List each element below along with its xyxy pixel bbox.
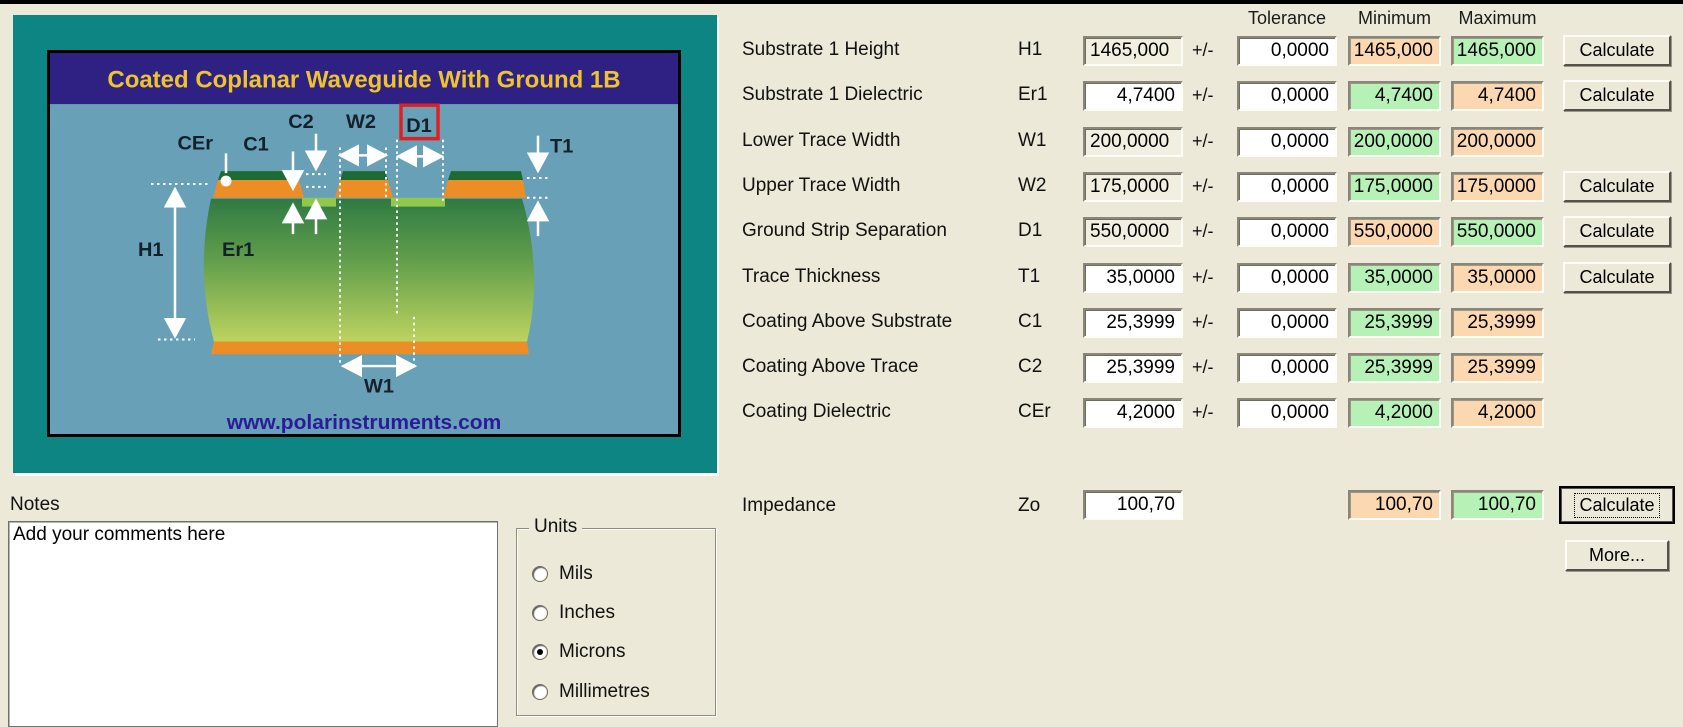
units-legend: Units: [529, 516, 582, 538]
calculate-button-T1[interactable]: Calculate: [1563, 262, 1671, 293]
param-value-input-CEr[interactable]: [1083, 398, 1183, 428]
param-label-C1: Coating Above Substrate: [742, 311, 952, 333]
units-radio-microns[interactable]: Microns: [532, 641, 626, 663]
units-radio-inches[interactable]: Inches: [532, 602, 615, 624]
structure-diagram-panel: Coated Coplanar Waveguide With Ground 1B: [47, 50, 681, 437]
param-minimum-Er1: 4,7400: [1348, 81, 1441, 111]
right-ground-copper: [443, 180, 526, 198]
param-minimum-CEr: 4,2000: [1348, 398, 1441, 428]
param-symbol-W2: W2: [1018, 175, 1047, 197]
center-trace-copper: [335, 180, 393, 198]
param-value-input-W1[interactable]: [1083, 127, 1183, 157]
param-tolerance-input-H1[interactable]: [1237, 36, 1337, 66]
plus-minus-C2: +/-: [1192, 357, 1214, 378]
param-symbol-W1: W1: [1018, 130, 1047, 152]
plus-minus-CEr: +/-: [1192, 402, 1214, 423]
units-radio-millimetres[interactable]: Millimetres: [532, 681, 650, 703]
param-label-D1: Ground Strip Separation: [742, 220, 947, 242]
bottom-copper-layer: [211, 341, 529, 354]
param-value-input-T1[interactable]: [1083, 263, 1183, 293]
diagram-label-er1: Er1: [222, 239, 254, 261]
impedance-value-input[interactable]: [1083, 490, 1183, 520]
radio-circle-microns[interactable]: [532, 644, 548, 660]
column-header-maximum: Maximum: [1451, 8, 1544, 29]
units-radio-mils[interactable]: Mils: [532, 563, 593, 585]
impedance-minimum-value: 100,70: [1348, 490, 1441, 520]
center-trace-coating: [340, 171, 388, 180]
diagram-label-h1: H1: [138, 239, 164, 261]
impedance-calculate-button-label: Calculate: [1574, 493, 1659, 518]
diagram-title: Coated Coplanar Waveguide With Ground 1B: [107, 67, 620, 94]
param-maximum-W1: 200,0000: [1451, 127, 1544, 157]
radio-label-mils: Mils: [559, 563, 593, 585]
impedance-maximum-value: 100,70: [1451, 490, 1544, 520]
param-symbol-CEr: CEr: [1018, 401, 1051, 423]
param-value-input-C1[interactable]: [1083, 308, 1183, 338]
param-label-Er1: Substrate 1 Dielectric: [742, 84, 923, 106]
param-tolerance-input-W1[interactable]: [1237, 127, 1337, 157]
param-minimum-D1: 550,0000: [1348, 217, 1441, 247]
param-minimum-T1: 35,0000: [1348, 263, 1441, 293]
valley-coating-left: [302, 198, 336, 207]
param-symbol-C2: C2: [1018, 356, 1042, 378]
plus-minus-D1: +/-: [1192, 221, 1214, 242]
param-minimum-H1: 1465,000: [1348, 36, 1441, 66]
column-header-tolerance: Tolerance: [1237, 8, 1337, 29]
param-symbol-D1: D1: [1018, 220, 1042, 242]
more-button[interactable]: More...: [1565, 540, 1669, 571]
param-value-input-Er1[interactable]: [1083, 81, 1183, 111]
plus-minus-W2: +/-: [1192, 176, 1214, 197]
diagram-label-cer: CEr: [177, 133, 213, 155]
plus-minus-W1: +/-: [1192, 131, 1214, 152]
param-maximum-CEr: 4,2000: [1451, 398, 1544, 428]
calculate-button-D1[interactable]: Calculate: [1563, 216, 1671, 247]
plus-minus-Er1: +/-: [1192, 85, 1214, 106]
valley-coating-right: [391, 198, 445, 207]
param-tolerance-input-Er1[interactable]: [1237, 81, 1337, 111]
param-label-W1: Lower Trace Width: [742, 130, 900, 152]
radio-label-inches: Inches: [559, 602, 615, 624]
radio-label-microns: Microns: [559, 641, 626, 663]
param-label-W2: Upper Trace Width: [742, 175, 900, 197]
diagram-label-w2: W2: [346, 111, 376, 133]
website-link[interactable]: www.polarinstruments.com: [226, 411, 501, 434]
param-label-H1: Substrate 1 Height: [742, 39, 899, 61]
calculator-window: Coated Coplanar Waveguide With Ground 1B: [0, 0, 1683, 727]
param-label-T1: Trace Thickness: [742, 266, 880, 288]
param-tolerance-input-C1[interactable]: [1237, 308, 1337, 338]
radio-circle-mils[interactable]: [532, 566, 548, 582]
impedance-symbol: Zo: [1018, 495, 1040, 517]
param-tolerance-input-C2[interactable]: [1237, 353, 1337, 383]
param-symbol-C1: C1: [1018, 311, 1042, 333]
param-maximum-C2: 25,3999: [1451, 353, 1544, 383]
coplanar-waveguide-diagram: Coated Coplanar Waveguide With Ground 1B: [50, 53, 678, 434]
radio-circle-inches[interactable]: [532, 605, 548, 621]
radio-label-millimetres: Millimetres: [559, 681, 650, 703]
param-symbol-Er1: Er1: [1018, 84, 1048, 106]
diagram-label-t1: T1: [550, 136, 573, 158]
impedance-calculate-button[interactable]: Calculate: [1561, 488, 1673, 522]
plus-minus-T1: +/-: [1192, 267, 1214, 288]
param-tolerance-input-D1[interactable]: [1237, 217, 1337, 247]
plus-minus-C1: +/-: [1192, 312, 1214, 333]
diagram-label-c1: C1: [243, 134, 269, 156]
window-top-edge: [0, 0, 1683, 4]
param-label-C2: Coating Above Trace: [742, 356, 918, 378]
param-minimum-C2: 25,3999: [1348, 353, 1441, 383]
param-maximum-D1: 550,0000: [1451, 217, 1544, 247]
param-maximum-Er1: 4,7400: [1451, 81, 1544, 111]
param-tolerance-input-CEr[interactable]: [1237, 398, 1337, 428]
param-maximum-T1: 35,0000: [1451, 263, 1544, 293]
param-minimum-W2: 175,0000: [1348, 172, 1441, 202]
cer-pointer-dot: [221, 176, 232, 187]
param-value-input-D1[interactable]: [1083, 217, 1183, 247]
calculate-button-H1[interactable]: Calculate: [1563, 35, 1671, 66]
calculate-button-Er1[interactable]: Calculate: [1563, 80, 1671, 111]
param-minimum-W1: 200,0000: [1348, 127, 1441, 157]
substrate-cross-section: [204, 199, 534, 342]
param-value-input-H1[interactable]: [1083, 36, 1183, 66]
right-ground-coating: [448, 171, 523, 180]
param-maximum-H1: 1465,000: [1451, 36, 1544, 66]
radio-circle-millimetres[interactable]: [532, 684, 548, 700]
param-symbol-T1: T1: [1018, 266, 1040, 288]
param-value-input-C2[interactable]: [1083, 353, 1183, 383]
plus-minus-H1: +/-: [1192, 40, 1214, 61]
impedance-label: Impedance: [742, 495, 836, 517]
param-minimum-C1: 25,3999: [1348, 308, 1441, 338]
diagram-label-c2: C2: [288, 111, 314, 133]
param-tolerance-input-W2[interactable]: [1237, 172, 1337, 202]
param-label-CEr: Coating Dielectric: [742, 401, 891, 423]
notes-textarea[interactable]: Add your comments here: [8, 521, 498, 727]
param-symbol-H1: H1: [1018, 39, 1042, 61]
structure-diagram-frame: Coated Coplanar Waveguide With Ground 1B: [13, 15, 717, 473]
param-maximum-C1: 25,3999: [1451, 308, 1544, 338]
param-value-input-W2[interactable]: [1083, 172, 1183, 202]
diagram-label-w1: W1: [364, 376, 394, 398]
column-header-minimum: Minimum: [1348, 8, 1441, 29]
param-maximum-W2: 175,0000: [1451, 172, 1544, 202]
diagram-label-d1: D1: [406, 115, 432, 137]
calculate-button-W2[interactable]: Calculate: [1563, 171, 1671, 202]
notes-label: Notes: [10, 494, 60, 516]
param-tolerance-input-T1[interactable]: [1237, 263, 1337, 293]
